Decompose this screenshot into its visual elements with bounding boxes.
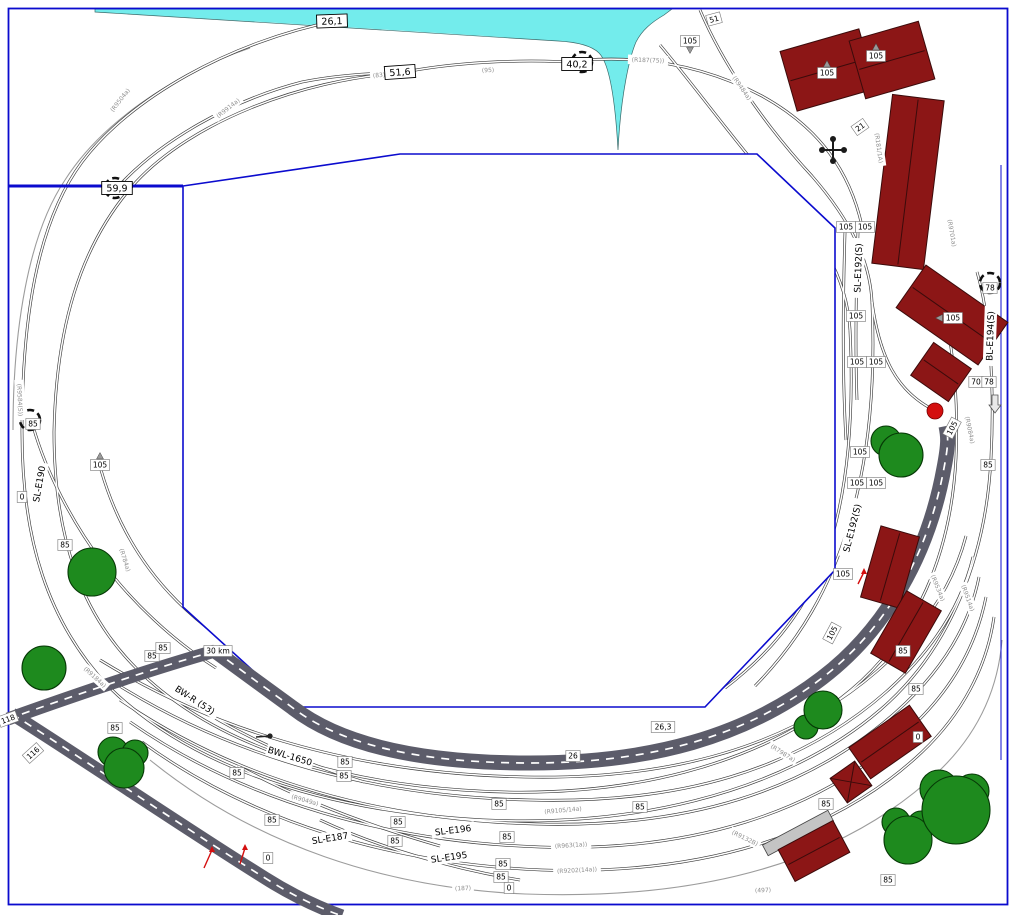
measure-label-text: 105	[850, 358, 865, 367]
measure-label[interactable]: 85	[496, 859, 510, 870]
measure-label[interactable]: 105	[867, 357, 886, 368]
measure-label-text: 85	[60, 541, 70, 550]
measure-label-text: 85	[498, 860, 508, 869]
curve-ref-label[interactable]: (R963(1a))	[551, 839, 592, 851]
tree-crown-circle	[68, 548, 116, 596]
curve-ref-label-text: (187)	[455, 885, 471, 893]
measure-label-text: 30 km	[206, 647, 230, 656]
measure-label[interactable]: 105	[856, 222, 875, 233]
measure-label[interactable]: 85	[108, 723, 122, 734]
measure-label[interactable]: 116	[22, 743, 43, 764]
measure-label-text: 85	[635, 803, 645, 812]
track-name-label[interactable]: SL-E190	[29, 462, 49, 507]
curve-ref-label-text: (R9132B)	[730, 829, 758, 848]
measure-label[interactable]: 85	[492, 799, 506, 810]
measure-label-text: 85	[496, 873, 506, 882]
measure-label-text: 85	[502, 833, 512, 842]
measure-label-text: 85	[883, 876, 893, 885]
measure-label-text: 85	[232, 769, 242, 778]
measure-label[interactable]: 85	[230, 768, 244, 779]
measure-label[interactable]: 105	[91, 453, 110, 471]
track-name-label-text: SL-E192(S)	[853, 243, 865, 293]
measure-label[interactable]: 105	[834, 569, 853, 580]
measure-label[interactable]: 85	[391, 817, 405, 828]
curve-ref-label-text: (497)	[755, 887, 771, 895]
measure-label[interactable]: 85	[58, 540, 72, 551]
measure-label-large[interactable]: 26,1	[317, 14, 348, 28]
measure-label[interactable]: 85	[265, 815, 279, 826]
measure-label[interactable]: 30 km	[204, 646, 232, 657]
measure-label-large-text: 40,2	[566, 59, 587, 70]
measure-label-text: 105	[869, 479, 884, 488]
measure-label-large-text: 26,1	[321, 16, 343, 28]
track-name-label[interactable]: SL-E192(S)	[851, 238, 866, 298]
measure-label-text: 26,3	[655, 723, 672, 732]
measure-label[interactable]: 26	[566, 751, 580, 762]
measure-label[interactable]: 105	[847, 311, 866, 322]
curve-ref-label[interactable]: (497)	[752, 885, 774, 895]
measure-label-text: 85	[28, 420, 38, 429]
curve-ref-label-text: (83)	[373, 72, 386, 80]
measure-label[interactable]: 51	[706, 12, 723, 26]
measure-label-text: 105	[849, 312, 864, 321]
measure-label[interactable]: 0	[263, 853, 273, 864]
curve-ref-label[interactable]: (R9105/14a)	[541, 803, 586, 816]
measure-label[interactable]: 105	[823, 622, 842, 644]
measure-label-text: 105	[683, 37, 698, 46]
measure-label[interactable]: 85	[337, 771, 351, 782]
measure-label-text: 105	[839, 223, 854, 232]
cross-marker-icon[interactable]	[819, 136, 847, 164]
measure-label[interactable]: 0	[504, 883, 514, 894]
curve-ref-label-text: (R9084a)	[963, 416, 976, 445]
tree[interactable]	[871, 426, 923, 477]
tree-crown-circle	[104, 748, 144, 788]
curve-ref-label[interactable]: (R9202(14a))	[553, 864, 601, 876]
measure-label[interactable]: 105	[848, 357, 867, 368]
measure-label[interactable]: 105	[867, 478, 886, 489]
measure-label[interactable]: 105	[681, 36, 700, 54]
measure-label-text: 105	[869, 52, 884, 61]
measure-label-text: 0	[507, 884, 512, 893]
measure-label[interactable]: 78	[982, 377, 996, 388]
measure-label-text: 0	[916, 733, 921, 742]
measure-label-text: 105	[820, 69, 835, 78]
measure-label-text: 26	[568, 752, 578, 761]
measure-label-text: 105	[93, 461, 108, 470]
measure-label[interactable]: 105	[848, 478, 867, 489]
measure-label-text: 105	[850, 479, 865, 488]
measure-label-large-text: 59,9	[106, 183, 127, 194]
curve-ref-label[interactable]: (187)	[452, 883, 474, 893]
measure-label[interactable]: 105	[851, 447, 870, 458]
measure-label[interactable]: 85	[26, 419, 40, 430]
red-signal-arrowhead	[242, 844, 248, 850]
measure-label-text: 85	[821, 800, 831, 809]
building[interactable]	[872, 94, 944, 269]
tree-crown-circle	[22, 646, 66, 690]
measure-label[interactable]: 85	[633, 802, 647, 813]
curve-ref-label[interactable]: (R9132B)	[728, 827, 762, 850]
measure-label-text: 105	[869, 358, 884, 367]
measure-label-text: 85	[158, 644, 168, 653]
measure-label-text: 85	[494, 800, 504, 809]
measure-label-text: 0	[266, 854, 271, 863]
curve-ref-label[interactable]: (R9701a)	[944, 216, 959, 250]
track-name-label[interactable]: SL-E196	[431, 821, 475, 839]
measure-label[interactable]: 85	[494, 872, 508, 883]
tree-crown-circle	[922, 776, 990, 844]
measure-label-text: 85	[267, 816, 277, 825]
curve-ref-label[interactable]: (R9484a)	[729, 72, 756, 104]
measure-label-text: 0	[20, 493, 25, 502]
measure-label-large-text: 51,6	[389, 67, 411, 79]
track-name-label[interactable]: SL-E192(S)	[839, 497, 866, 558]
building[interactable]	[849, 21, 935, 99]
curve-ref-label[interactable]: (R784a)	[116, 545, 134, 576]
tree[interactable]	[22, 646, 66, 690]
measure-label-text: 85	[147, 652, 157, 661]
curve-ref-label-text: (95)	[482, 67, 495, 74]
tree-crown-circle	[804, 691, 842, 729]
measure-label[interactable]: 85	[981, 460, 995, 471]
measure-label[interactable]: 21	[851, 118, 869, 135]
curve-ref-label-text: (R187(75))	[632, 57, 665, 65]
measure-label-text: 105	[946, 314, 961, 323]
measure-label-large[interactable]: 59,9	[102, 182, 133, 195]
curve-ref-label[interactable]: (95)	[479, 65, 497, 75]
track-plan-canvas[interactable]: (R9504a)(R9914a)(83)(95)(R187(75))(R9484…	[0, 0, 1015, 915]
track-name-label-text: BWL-1650	[266, 746, 313, 769]
measure-label-text: 85	[983, 461, 993, 470]
inner-baseboard-outline[interactable]	[8, 154, 835, 707]
measure-label[interactable]: 0	[913, 732, 923, 743]
measure-label[interactable]: 85	[338, 757, 352, 768]
measure-label-text: 85	[911, 685, 921, 694]
measure-label[interactable]: 85	[896, 646, 910, 657]
measure-label[interactable]: 85	[156, 643, 170, 654]
track-name-label[interactable]: SL-E187	[308, 828, 352, 847]
baseboard-polygon[interactable]	[183, 154, 835, 707]
tree-crown-circle	[879, 433, 923, 477]
tree[interactable]	[920, 770, 990, 844]
measure-label[interactable]: 85	[819, 799, 833, 810]
tree[interactable]	[68, 548, 116, 596]
measure-label-text: 85	[339, 772, 349, 781]
measure-label[interactable]: 85	[881, 875, 895, 886]
measure-label-text: 85	[110, 724, 120, 733]
measure-label-text: 85	[393, 818, 403, 827]
red-signal-arrowhead	[861, 568, 867, 574]
measure-label[interactable]: 85	[500, 832, 514, 843]
measure-label[interactable]: 0	[17, 492, 27, 503]
measure-label[interactable]: 78	[983, 283, 997, 294]
measure-label[interactable]: 26,3	[651, 722, 675, 733]
measure-label-large[interactable]: 51,6	[384, 64, 415, 79]
measure-label[interactable]: 85	[909, 684, 923, 695]
label-pointer-icon	[687, 47, 694, 54]
track-name-label-text: BL-E194(S)	[985, 311, 997, 361]
label-pointer-icon	[97, 453, 104, 460]
red-signal-arrow[interactable]	[204, 850, 212, 868]
measure-label-text: 85	[390, 837, 400, 846]
measure-label-text: 78	[985, 284, 995, 293]
measure-label[interactable]: 70	[969, 377, 983, 388]
measure-label-text: 105	[853, 448, 868, 457]
measure-label-text: 105	[836, 570, 851, 579]
measure-label-text: 85	[898, 647, 908, 656]
measure-label[interactable]: 105	[837, 222, 856, 233]
measure-label[interactable]: 85	[388, 836, 402, 847]
measure-label-text: 78	[984, 378, 994, 387]
track-name-label[interactable]: BL-E194(S)	[983, 306, 998, 366]
red-signal-dot[interactable]	[927, 403, 943, 419]
measure-label-text: 85	[340, 758, 350, 767]
curve-ref-label-text: (R9504a)	[109, 87, 132, 113]
measure-label-text: 105	[858, 223, 873, 232]
curve-ref-label[interactable]: (R187(75))	[628, 55, 669, 66]
track-name-label-text: SL-E190	[32, 465, 48, 503]
measure-label-text: 70	[971, 378, 981, 387]
curve-ref-label[interactable]: (R181/1A)	[872, 129, 886, 166]
curve-ref-label[interactable]: (R9084a)	[962, 413, 978, 447]
measure-label-large[interactable]: 40,2	[562, 58, 593, 71]
